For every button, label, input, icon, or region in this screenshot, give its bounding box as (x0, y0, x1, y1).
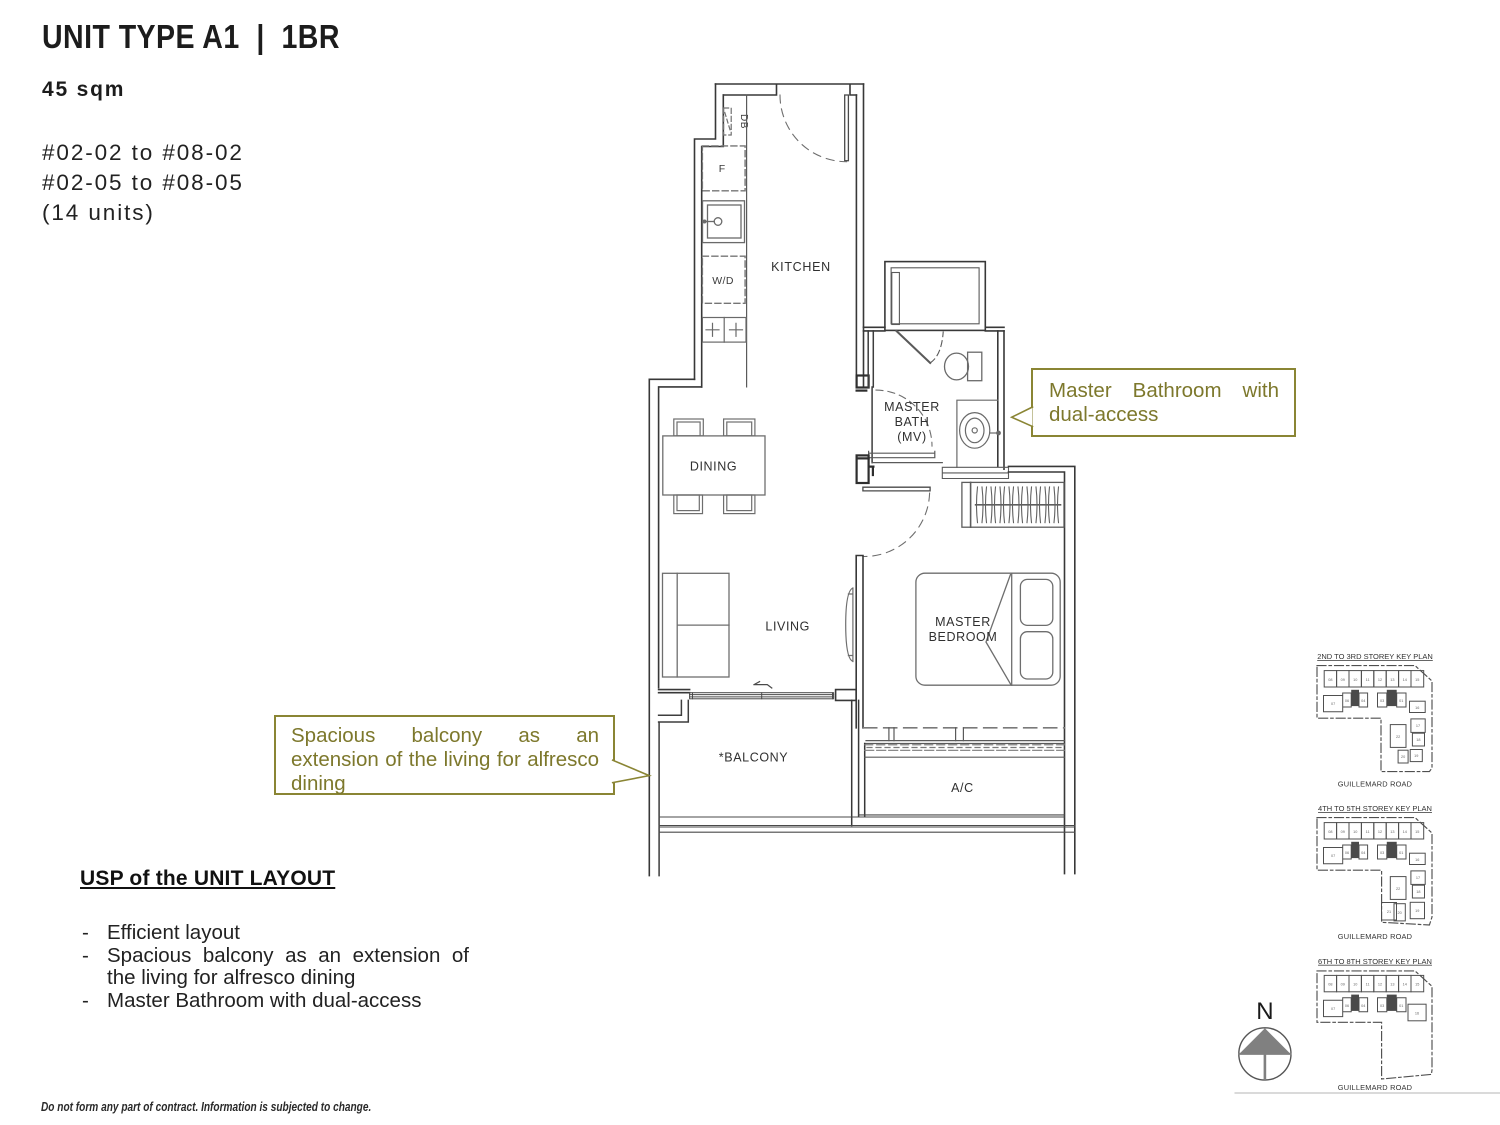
svg-text:12: 12 (1378, 830, 1382, 834)
svg-text:03: 03 (1380, 699, 1384, 703)
svg-text:10: 10 (1353, 983, 1357, 987)
svg-text:10: 10 (1353, 830, 1357, 834)
svg-text:09: 09 (1341, 678, 1345, 682)
svg-text:03: 03 (1380, 851, 1384, 855)
svg-text:22: 22 (1396, 735, 1400, 739)
svg-text:06: 06 (1345, 1004, 1349, 1008)
svg-text:18: 18 (1416, 738, 1420, 742)
svg-text:22: 22 (1396, 887, 1400, 891)
svg-text:06: 06 (1345, 851, 1349, 855)
svg-text:09: 09 (1341, 983, 1345, 987)
svg-text:04: 04 (1361, 699, 1365, 703)
svg-text:KITCHEN: KITCHEN (771, 260, 831, 274)
svg-text:10: 10 (1353, 678, 1357, 682)
svg-text:BATH: BATH (895, 415, 930, 429)
svg-text:GUILLEMARD ROAD: GUILLEMARD ROAD (1338, 1083, 1412, 1092)
svg-text:15: 15 (1415, 678, 1419, 682)
svg-text:20: 20 (1401, 755, 1405, 759)
svg-text:6TH TO 8TH STOREY KEY PLAN: 6TH TO 8TH STOREY KEY PLAN (1318, 957, 1432, 966)
svg-text:20: 20 (1397, 911, 1401, 915)
svg-text:F: F (719, 163, 725, 175)
svg-text:08: 08 (1328, 678, 1332, 682)
svg-text:16: 16 (1415, 858, 1419, 862)
svg-text:11: 11 (1366, 678, 1370, 682)
svg-text:GUILLEMARD ROAD: GUILLEMARD ROAD (1338, 780, 1412, 789)
svg-text:21: 21 (1387, 910, 1391, 914)
svg-text:13: 13 (1390, 983, 1394, 987)
svg-text:13: 13 (1390, 830, 1394, 834)
svg-text:09: 09 (1341, 830, 1345, 834)
svg-text:16: 16 (1415, 706, 1419, 710)
svg-text:N: N (1256, 998, 1273, 1025)
svg-text:LIVING: LIVING (765, 620, 810, 634)
svg-text:2ND TO 3RD STOREY KEY PLAN: 2ND TO 3RD STOREY KEY PLAN (1317, 652, 1433, 661)
svg-text:16: 16 (1415, 1012, 1419, 1016)
svg-text:17: 17 (1416, 724, 1420, 728)
svg-text:03: 03 (1380, 1004, 1384, 1008)
svg-text:04: 04 (1361, 1004, 1365, 1008)
svg-text:18: 18 (1416, 890, 1420, 894)
svg-text:11: 11 (1366, 830, 1370, 834)
svg-text:15: 15 (1415, 830, 1419, 834)
svg-text:17: 17 (1416, 876, 1420, 880)
svg-text:12: 12 (1378, 678, 1382, 682)
svg-text:DB: DB (738, 114, 749, 129)
svg-text:W/D: W/D (712, 275, 734, 287)
svg-text:07: 07 (1331, 854, 1335, 858)
svg-text:14: 14 (1403, 983, 1407, 987)
svg-text:01: 01 (1399, 699, 1403, 703)
svg-text:07: 07 (1331, 1007, 1335, 1011)
svg-text:BEDROOM: BEDROOM (929, 630, 998, 644)
svg-text:4TH TO 5TH STOREY KEY PLAN: 4TH TO 5TH STOREY KEY PLAN (1318, 804, 1432, 813)
svg-text:MASTER: MASTER (884, 400, 940, 414)
svg-text:06: 06 (1345, 699, 1349, 703)
svg-text:14: 14 (1403, 678, 1407, 682)
svg-text:01: 01 (1399, 1004, 1403, 1008)
svg-text:01: 01 (1399, 851, 1403, 855)
svg-text:*BALCONY: *BALCONY (719, 751, 788, 765)
svg-text:19: 19 (1415, 909, 1419, 913)
svg-text:12: 12 (1378, 983, 1382, 987)
svg-text:A/C: A/C (951, 781, 974, 795)
svg-text:(MV): (MV) (897, 430, 926, 444)
svg-text:08: 08 (1328, 983, 1332, 987)
svg-text:14: 14 (1403, 830, 1407, 834)
svg-text:MASTER: MASTER (935, 615, 991, 629)
svg-text:19: 19 (1414, 754, 1418, 758)
svg-text:07: 07 (1331, 702, 1335, 706)
svg-text:08: 08 (1328, 830, 1332, 834)
svg-text:DINING: DINING (690, 460, 737, 474)
svg-text:11: 11 (1366, 983, 1370, 987)
svg-text:15: 15 (1415, 983, 1419, 987)
svg-text:04: 04 (1361, 851, 1365, 855)
svg-text:GUILLEMARD ROAD: GUILLEMARD ROAD (1338, 932, 1412, 941)
svg-text:13: 13 (1390, 678, 1394, 682)
